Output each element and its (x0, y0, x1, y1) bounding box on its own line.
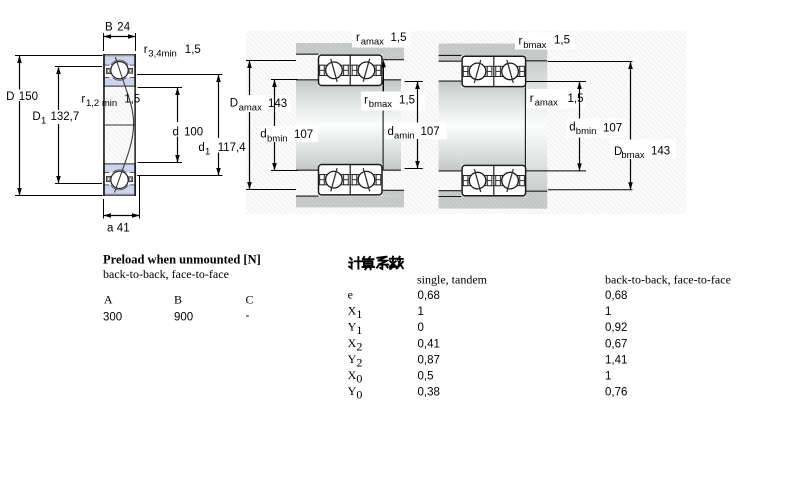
svg-text:0,92: 0,92 (605, 322, 627, 334)
svg-text:r: r (364, 95, 368, 107)
svg-text:r: r (144, 44, 148, 56)
svg-text:X: X (348, 304, 357, 318)
svg-text:1,2 min: 1,2 min (86, 98, 117, 109)
svg-text:d: d (260, 129, 266, 141)
svg-text:1,41: 1,41 (605, 354, 627, 366)
svg-text:bmax: bmax (369, 99, 392, 110)
svg-text:1,5: 1,5 (399, 95, 415, 107)
svg-text:X: X (348, 368, 357, 382)
svg-text:117,4: 117,4 (218, 142, 247, 154)
svg-text:D: D (230, 98, 238, 110)
svg-text:1: 1 (418, 306, 424, 318)
svg-text:amax: amax (361, 37, 384, 48)
svg-text:143: 143 (651, 146, 670, 158)
svg-text:Y: Y (348, 384, 357, 398)
svg-text:1: 1 (41, 115, 46, 126)
svg-text:bmax: bmax (523, 40, 546, 51)
svg-text:1: 1 (356, 307, 362, 321)
svg-text:1: 1 (356, 323, 362, 337)
svg-text:bmin: bmin (267, 134, 288, 145)
svg-text:B: B (105, 22, 113, 34)
svg-text:41: 41 (117, 223, 130, 235)
svg-text:D: D (6, 91, 14, 103)
svg-text:0,38: 0,38 (418, 387, 440, 399)
svg-text:amax: amax (239, 103, 262, 114)
svg-text:Y: Y (348, 320, 357, 334)
svg-text:back-to-back, face-to-face: back-to-back, face-to-face (103, 267, 229, 281)
svg-text:B: B (174, 293, 182, 307)
svg-text:0: 0 (356, 388, 362, 402)
svg-text:1: 1 (205, 147, 210, 158)
svg-text:0: 0 (418, 322, 424, 334)
svg-text:A: A (104, 293, 113, 307)
svg-text:bmin: bmin (576, 126, 597, 137)
svg-text:1: 1 (605, 371, 611, 383)
svg-text:0,5: 0,5 (418, 371, 434, 383)
svg-text:2: 2 (356, 355, 362, 369)
svg-text:r: r (519, 36, 523, 48)
svg-text:0: 0 (356, 372, 362, 386)
svg-text:107: 107 (294, 129, 313, 141)
svg-text:150: 150 (19, 91, 38, 103)
svg-text:r: r (530, 93, 534, 105)
svg-text:2: 2 (356, 339, 362, 353)
svg-text:a: a (107, 223, 114, 235)
svg-text:300: 300 (103, 312, 122, 324)
svg-text:100: 100 (184, 126, 203, 138)
svg-text:0,41: 0,41 (418, 338, 440, 350)
svg-text:0,67: 0,67 (605, 338, 627, 350)
svg-text:1,5: 1,5 (391, 32, 407, 44)
svg-text:-: - (246, 310, 250, 322)
svg-text:amax: amax (535, 98, 558, 109)
svg-text:bmax: bmax (621, 150, 644, 161)
svg-text:X: X (348, 336, 357, 350)
svg-text:107: 107 (421, 126, 440, 138)
svg-text:0,87: 0,87 (418, 354, 440, 366)
svg-text:Y: Y (348, 352, 357, 366)
svg-text:C: C (246, 293, 254, 307)
svg-text:d: d (198, 142, 204, 154)
svg-text:r: r (81, 93, 85, 105)
svg-text:Preload when unmounted [N]: Preload when unmounted [N] (103, 253, 261, 267)
svg-text:r: r (356, 32, 360, 44)
svg-text:1,5: 1,5 (554, 35, 570, 47)
svg-text:132,7: 132,7 (51, 111, 80, 123)
svg-text:24: 24 (117, 22, 130, 34)
svg-text:amin: amin (394, 130, 415, 141)
svg-text:0,68: 0,68 (418, 290, 440, 302)
svg-text:0,68: 0,68 (605, 290, 627, 302)
svg-text:e: e (348, 288, 353, 302)
svg-text:D: D (32, 111, 40, 123)
svg-text:d: d (388, 126, 394, 138)
svg-text:back-to-back, face-to-face: back-to-back, face-to-face (605, 273, 731, 287)
svg-text:3,4min: 3,4min (148, 49, 177, 60)
svg-text:107: 107 (603, 123, 622, 135)
svg-text:d: d (569, 121, 575, 133)
svg-text:single, tandem: single, tandem (417, 273, 488, 287)
svg-text:1,5: 1,5 (568, 93, 584, 105)
svg-text:1,5: 1,5 (124, 93, 140, 105)
svg-text:900: 900 (174, 312, 193, 324)
svg-text:1: 1 (605, 306, 611, 318)
svg-text:1,5: 1,5 (185, 44, 201, 56)
svg-text:0,76: 0,76 (605, 387, 627, 399)
svg-text:d: d (173, 126, 179, 138)
svg-text:143: 143 (268, 98, 287, 110)
